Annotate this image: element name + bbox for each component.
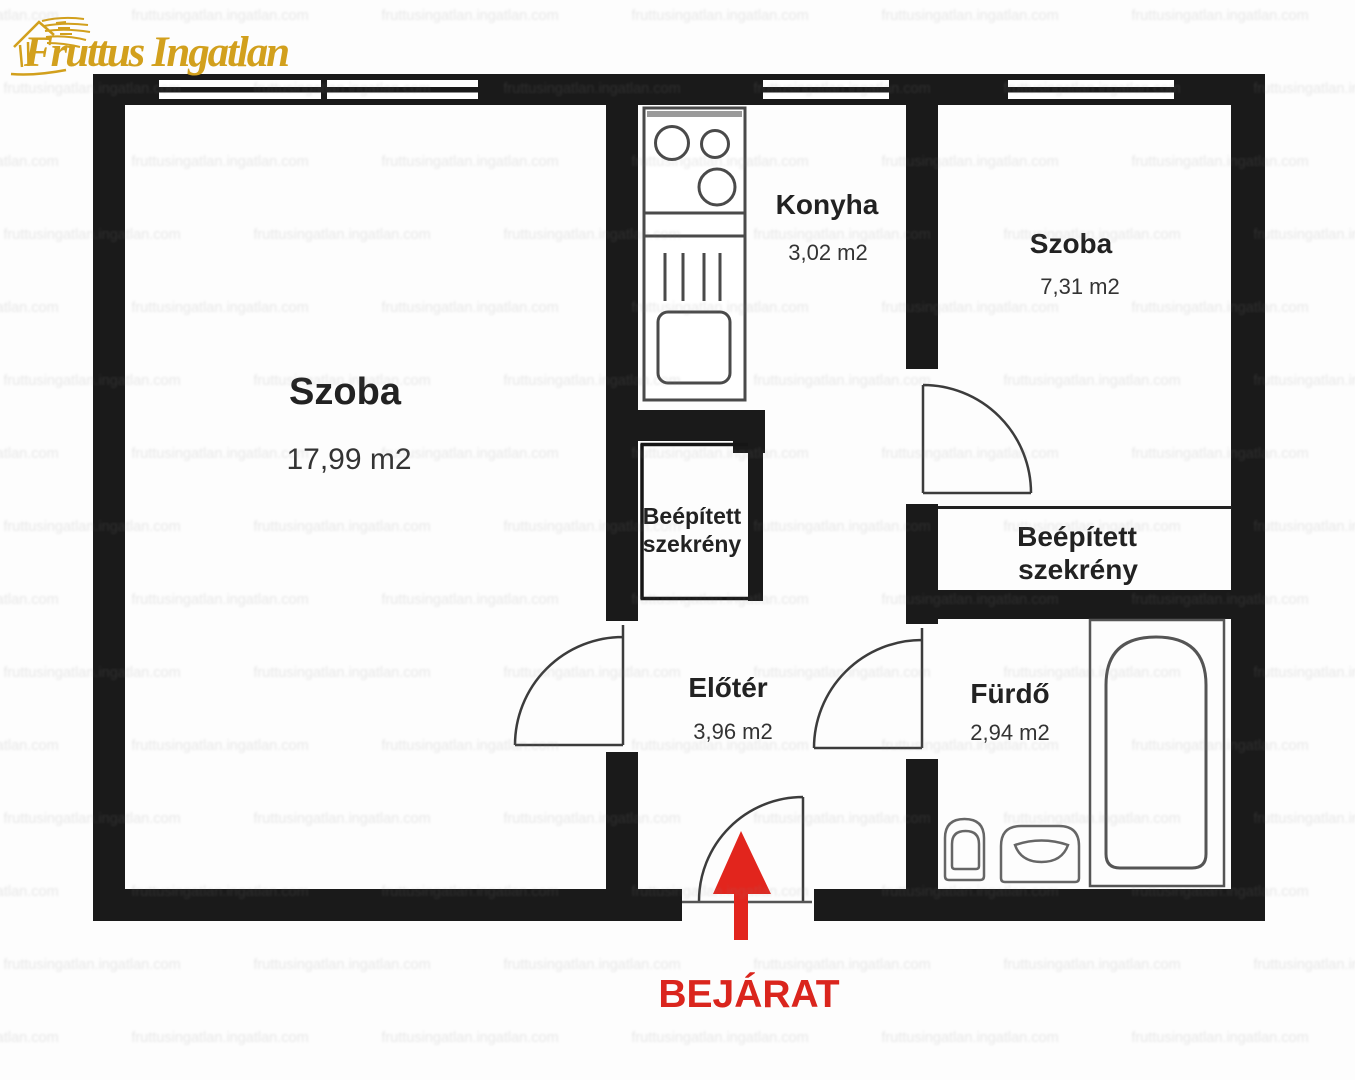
svg-text:fruttusingatlan.ingatlan.com: fruttusingatlan.ingatlan.com <box>503 519 680 535</box>
svg-text:fruttusingatlan.ingatlan.com: fruttusingatlan.ingatlan.com <box>881 1030 1058 1046</box>
svg-text:fruttusingatlan.ingatlan.com: fruttusingatlan.ingatlan.com <box>1131 592 1308 608</box>
svg-text:fruttusingatlan.ingatlan.com: fruttusingatlan.ingatlan.com <box>881 884 1058 900</box>
svg-text:fruttusingatlan.ingatlan.com: fruttusingatlan.ingatlan.com <box>3 665 180 681</box>
svg-text:3,02 m2: 3,02 m2 <box>788 240 868 265</box>
svg-text:fruttusingatlan.ingatlan.com: fruttusingatlan.ingatlan.com <box>0 154 59 170</box>
svg-text:fruttusingatlan.ingatlan.com: fruttusingatlan.ingatlan.com <box>253 227 430 243</box>
svg-text:fruttusingatlan.ingatlan.com: fruttusingatlan.ingatlan.com <box>503 227 680 243</box>
svg-text:fruttusingatlan.ingatlan.com: fruttusingatlan.ingatlan.com <box>131 154 308 170</box>
svg-text:fruttusingatlan.ingatlan.com: fruttusingatlan.ingatlan.com <box>753 665 930 681</box>
svg-text:fruttusingatlan.ingatlan.com: fruttusingatlan.ingatlan.com <box>1131 884 1308 900</box>
svg-text:fruttusingatlan.ingatlan.com: fruttusingatlan.ingatlan.com <box>1253 81 1355 97</box>
svg-text:fruttusingatlan.ingatlan.com: fruttusingatlan.ingatlan.com <box>881 738 1058 754</box>
svg-text:fruttusingatlan.ingatlan.com: fruttusingatlan.ingatlan.com <box>631 8 808 24</box>
svg-text:fruttusingatlan.ingatlan.com: fruttusingatlan.ingatlan.com <box>753 81 930 97</box>
svg-text:fruttusingatlan.ingatlan.com: fruttusingatlan.ingatlan.com <box>253 665 430 681</box>
svg-text:fruttusingatlan.ingatlan.com: fruttusingatlan.ingatlan.com <box>381 1030 558 1046</box>
svg-text:fruttusingatlan.ingatlan.com: fruttusingatlan.ingatlan.com <box>3 227 180 243</box>
svg-text:fruttusingatlan.ingatlan.com: fruttusingatlan.ingatlan.com <box>131 1030 308 1046</box>
svg-text:fruttusingatlan.ingatlan.com: fruttusingatlan.ingatlan.com <box>131 592 308 608</box>
svg-text:fruttusingatlan.ingatlan.com: fruttusingatlan.ingatlan.com <box>631 884 808 900</box>
svg-text:fruttusingatlan.ingatlan.com: fruttusingatlan.ingatlan.com <box>631 592 808 608</box>
svg-text:fruttusingatlan.ingatlan.com: fruttusingatlan.ingatlan.com <box>0 738 59 754</box>
svg-text:fruttusingatlan.ingatlan.com: fruttusingatlan.ingatlan.com <box>0 1030 59 1046</box>
svg-text:fruttusingatlan.ingatlan.com: fruttusingatlan.ingatlan.com <box>631 738 808 754</box>
svg-text:fruttusingatlan.ingatlan.com: fruttusingatlan.ingatlan.com <box>881 446 1058 462</box>
svg-text:fruttusingatlan.ingatlan.com: fruttusingatlan.ingatlan.com <box>503 811 680 827</box>
svg-text:fruttusingatlan.ingatlan.com: fruttusingatlan.ingatlan.com <box>0 884 59 900</box>
svg-text:fruttusingatlan.ingatlan.com: fruttusingatlan.ingatlan.com <box>131 884 308 900</box>
svg-text:fruttusingatlan.ingatlan.com: fruttusingatlan.ingatlan.com <box>1003 373 1180 389</box>
svg-text:fruttusingatlan.ingatlan.com: fruttusingatlan.ingatlan.com <box>753 373 930 389</box>
svg-text:fruttusingatlan.ingatlan.com: fruttusingatlan.ingatlan.com <box>1003 81 1180 97</box>
svg-text:fruttusingatlan.ingatlan.com: fruttusingatlan.ingatlan.com <box>1253 811 1355 827</box>
svg-text:Konyha: Konyha <box>776 189 879 220</box>
svg-text:fruttusingatlan.ingatlan.com: fruttusingatlan.ingatlan.com <box>131 446 308 462</box>
svg-text:fruttusingatlan.ingatlan.com: fruttusingatlan.ingatlan.com <box>1253 227 1355 243</box>
svg-text:fruttusingatlan.ingatlan.com: fruttusingatlan.ingatlan.com <box>1131 8 1308 24</box>
svg-text:fruttusingatlan.ingatlan.com: fruttusingatlan.ingatlan.com <box>1003 957 1180 973</box>
svg-text:fruttusingatlan.ingatlan.com: fruttusingatlan.ingatlan.com <box>3 81 180 97</box>
svg-text:BEJÁRAT: BEJÁRAT <box>658 972 839 1016</box>
svg-text:fruttusingatlan.ingatlan.com: fruttusingatlan.ingatlan.com <box>1003 519 1180 535</box>
svg-text:fruttusingatlan.ingatlan.com: fruttusingatlan.ingatlan.com <box>0 446 59 462</box>
svg-text:fruttusingatlan.ingatlan.com: fruttusingatlan.ingatlan.com <box>0 8 59 24</box>
svg-text:fruttusingatlan.ingatlan.com: fruttusingatlan.ingatlan.com <box>503 665 680 681</box>
svg-text:fruttusingatlan.ingatlan.com: fruttusingatlan.ingatlan.com <box>1253 519 1355 535</box>
svg-text:fruttusingatlan.ingatlan.com: fruttusingatlan.ingatlan.com <box>381 8 558 24</box>
svg-text:7,31 m2: 7,31 m2 <box>1040 274 1120 299</box>
svg-text:fruttusingatlan.ingatlan.com: fruttusingatlan.ingatlan.com <box>753 519 930 535</box>
svg-text:fruttusingatlan.ingatlan.com: fruttusingatlan.ingatlan.com <box>1131 154 1308 170</box>
svg-text:fruttusingatlan.ingatlan.com: fruttusingatlan.ingatlan.com <box>1253 665 1355 681</box>
svg-text:fruttusingatlan.ingatlan.com: fruttusingatlan.ingatlan.com <box>503 957 680 973</box>
svg-text:fruttusingatlan.ingatlan.com: fruttusingatlan.ingatlan.com <box>131 300 308 316</box>
svg-text:fruttusingatlan.ingatlan.com: fruttusingatlan.ingatlan.com <box>753 957 930 973</box>
svg-text:fruttusingatlan.ingatlan.com: fruttusingatlan.ingatlan.com <box>131 8 308 24</box>
svg-text:fruttusingatlan.ingatlan.com: fruttusingatlan.ingatlan.com <box>1253 957 1355 973</box>
svg-text:fruttusingatlan.ingatlan.com: fruttusingatlan.ingatlan.com <box>131 738 308 754</box>
svg-text:fruttusingatlan.ingatlan.com: fruttusingatlan.ingatlan.com <box>1131 1030 1308 1046</box>
svg-text:fruttusingatlan.ingatlan.com: fruttusingatlan.ingatlan.com <box>3 957 180 973</box>
svg-text:fruttusingatlan.ingatlan.com: fruttusingatlan.ingatlan.com <box>881 154 1058 170</box>
svg-text:fruttusingatlan.ingatlan.com: fruttusingatlan.ingatlan.com <box>753 227 930 243</box>
svg-text:fruttusingatlan.ingatlan.com: fruttusingatlan.ingatlan.com <box>253 957 430 973</box>
svg-text:Fruttus Ingatlan: Fruttus Ingatlan <box>23 29 290 76</box>
svg-text:fruttusingatlan.ingatlan.com: fruttusingatlan.ingatlan.com <box>3 373 180 389</box>
svg-text:szekrény: szekrény <box>1018 554 1138 585</box>
svg-text:fruttusingatlan.ingatlan.com: fruttusingatlan.ingatlan.com <box>1131 738 1308 754</box>
svg-text:fruttusingatlan.ingatlan.com: fruttusingatlan.ingatlan.com <box>631 300 808 316</box>
svg-text:fruttusingatlan.ingatlan.com: fruttusingatlan.ingatlan.com <box>881 8 1058 24</box>
svg-text:fruttusingatlan.ingatlan.com: fruttusingatlan.ingatlan.com <box>753 811 930 827</box>
svg-text:fruttusingatlan.ingatlan.com: fruttusingatlan.ingatlan.com <box>253 81 430 97</box>
svg-text:fruttusingatlan.ingatlan.com: fruttusingatlan.ingatlan.com <box>381 300 558 316</box>
svg-text:fruttusingatlan.ingatlan.com: fruttusingatlan.ingatlan.com <box>881 300 1058 316</box>
svg-text:fruttusingatlan.ingatlan.com: fruttusingatlan.ingatlan.com <box>631 1030 808 1046</box>
svg-text:fruttusingatlan.ingatlan.com: fruttusingatlan.ingatlan.com <box>503 373 680 389</box>
svg-text:fruttusingatlan.ingatlan.com: fruttusingatlan.ingatlan.com <box>381 738 558 754</box>
svg-text:fruttusingatlan.ingatlan.com: fruttusingatlan.ingatlan.com <box>381 446 558 462</box>
svg-text:fruttusingatlan.ingatlan.com: fruttusingatlan.ingatlan.com <box>253 373 430 389</box>
svg-text:fruttusingatlan.ingatlan.com: fruttusingatlan.ingatlan.com <box>253 519 430 535</box>
svg-text:fruttusingatlan.ingatlan.com: fruttusingatlan.ingatlan.com <box>1131 446 1308 462</box>
svg-text:fruttusingatlan.ingatlan.com: fruttusingatlan.ingatlan.com <box>3 519 180 535</box>
svg-text:fruttusingatlan.ingatlan.com: fruttusingatlan.ingatlan.com <box>503 81 680 97</box>
svg-text:fruttusingatlan.ingatlan.com: fruttusingatlan.ingatlan.com <box>381 884 558 900</box>
svg-text:fruttusingatlan.ingatlan.com: fruttusingatlan.ingatlan.com <box>631 446 808 462</box>
svg-text:fruttusingatlan.ingatlan.com: fruttusingatlan.ingatlan.com <box>0 592 59 608</box>
svg-text:fruttusingatlan.ingatlan.com: fruttusingatlan.ingatlan.com <box>0 300 59 316</box>
svg-text:Fürdő: Fürdő <box>970 678 1049 709</box>
svg-text:fruttusingatlan.ingatlan.com: fruttusingatlan.ingatlan.com <box>253 811 430 827</box>
svg-text:fruttusingatlan.ingatlan.com: fruttusingatlan.ingatlan.com <box>1003 227 1180 243</box>
svg-text:fruttusingatlan.ingatlan.com: fruttusingatlan.ingatlan.com <box>381 154 558 170</box>
svg-text:fruttusingatlan.ingatlan.com: fruttusingatlan.ingatlan.com <box>3 811 180 827</box>
svg-text:fruttusingatlan.ingatlan.com: fruttusingatlan.ingatlan.com <box>1003 811 1180 827</box>
svg-text:fruttusingatlan.ingatlan.com: fruttusingatlan.ingatlan.com <box>881 592 1058 608</box>
svg-text:fruttusingatlan.ingatlan.com: fruttusingatlan.ingatlan.com <box>1253 373 1355 389</box>
svg-text:fruttusingatlan.ingatlan.com: fruttusingatlan.ingatlan.com <box>381 592 558 608</box>
svg-text:fruttusingatlan.ingatlan.com: fruttusingatlan.ingatlan.com <box>631 154 808 170</box>
svg-text:fruttusingatlan.ingatlan.com: fruttusingatlan.ingatlan.com <box>1003 665 1180 681</box>
svg-text:fruttusingatlan.ingatlan.com: fruttusingatlan.ingatlan.com <box>1131 300 1308 316</box>
